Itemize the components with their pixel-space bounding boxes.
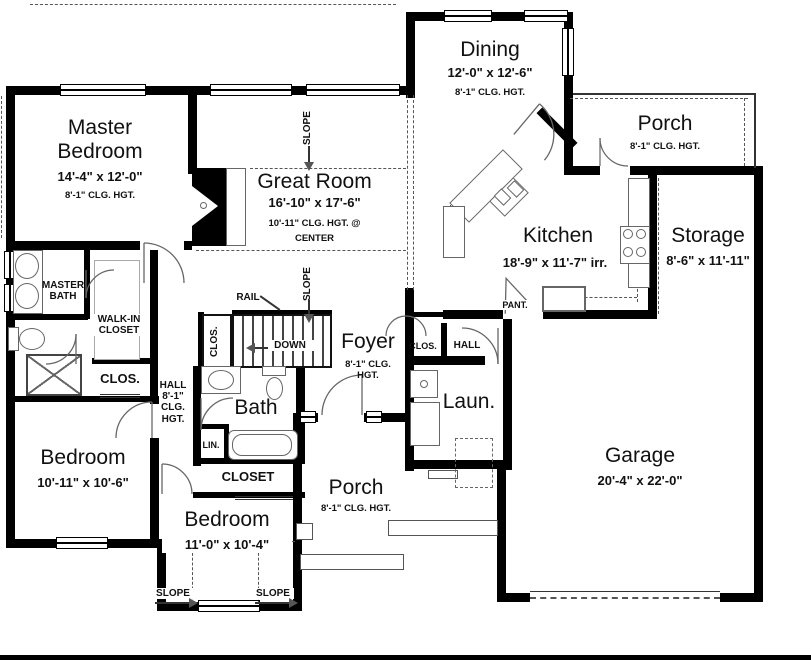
door-bedroom-rear	[162, 464, 192, 494]
garage-door	[530, 591, 720, 603]
wall	[193, 366, 201, 466]
garage-stoop	[428, 470, 458, 479]
slope-arrow-stem	[155, 602, 189, 604]
foyer-ceiling: 8'-1" CLG. HGT.	[336, 360, 400, 381]
hall-garage-label: HALL	[447, 340, 487, 351]
great-room-dims: 16'-10" x 17'-6"	[232, 196, 397, 211]
toilet-tank	[8, 327, 19, 351]
laundry-sink-drain	[420, 380, 428, 388]
window	[306, 84, 400, 96]
closet-bedroom-label: CLOSET	[208, 470, 288, 485]
bedroom-left-dims: 10'-11" x 10'-6"	[16, 476, 150, 491]
toilet-bowl	[19, 328, 45, 350]
laundry-label: Laun.	[436, 390, 502, 414]
refrigerator	[542, 286, 586, 312]
bedroom-rear-dims: 11'-0" x 10'-4"	[162, 538, 292, 553]
closet-door-track	[235, 499, 293, 500]
door-foyer-closet	[406, 316, 426, 336]
porch-rear-ceiling: 8'-1" CLG. HGT.	[610, 142, 720, 153]
slope-arrow-stem	[308, 300, 310, 314]
bath-label: Bath	[226, 396, 286, 420]
burner	[636, 247, 646, 257]
slope-label: SLOPE	[252, 588, 294, 599]
porch-edge	[754, 93, 756, 168]
porch-front-label: Porch	[318, 476, 394, 500]
closet-foyer-label: CLOS.	[404, 341, 442, 351]
closet-door-track	[100, 394, 140, 395]
porch-roof-line	[570, 98, 748, 99]
closet-door-track	[235, 496, 293, 497]
wall	[6, 314, 88, 320]
fireplace-detail	[200, 202, 207, 209]
window	[562, 28, 574, 76]
wall	[188, 86, 197, 174]
wall	[406, 12, 415, 98]
kitchen-counter	[443, 206, 465, 258]
bedroom-rear-label: Bedroom	[172, 508, 282, 532]
sidelight-window	[300, 411, 316, 423]
floor-plan: DOWN RAIL CLOS. S	[0, 0, 811, 664]
bathtub-inner	[232, 434, 292, 456]
page-footer-line	[0, 655, 811, 660]
door-walkin-closet	[86, 270, 114, 298]
slope-arrow-stem	[255, 602, 289, 604]
window	[524, 10, 568, 22]
window	[56, 537, 108, 549]
window	[198, 600, 260, 612]
window	[60, 84, 146, 96]
wall	[497, 465, 506, 602]
foyer-label: Foyer	[332, 330, 404, 354]
dining-dims: 12'-0" x 12'-6"	[420, 66, 560, 81]
sink	[15, 253, 39, 279]
down-label: DOWN	[266, 340, 314, 351]
porch-edge	[573, 93, 756, 95]
slope-arrow-head	[304, 314, 314, 323]
kitchen-label: Kitchen	[498, 224, 618, 248]
dryer-space	[455, 438, 493, 488]
closet-door-track	[100, 397, 140, 398]
down-arrow-stem	[254, 347, 268, 349]
closet-master-label: CLOS.	[92, 372, 148, 387]
storage-dims: 8'-6" x 11'-11"	[652, 254, 764, 269]
master-bedroom-ceiling: 8'-1" CLG. HGT.	[25, 191, 175, 202]
window	[210, 84, 292, 96]
master-bath-label: MASTER BATH	[36, 280, 90, 302]
stair-closet-label: CLOS.	[209, 320, 220, 364]
porch-post	[296, 523, 313, 540]
garage-dims: 20'-4" x 22'-0"	[572, 474, 708, 489]
porch-rear-label: Porch	[610, 112, 720, 136]
master-bedroom-label: Master Bedroom	[30, 116, 170, 163]
dining-label: Dining	[425, 38, 555, 62]
room-divider-dashed	[413, 95, 414, 290]
door-toilet-room	[46, 334, 76, 364]
storage-label: Storage	[658, 224, 758, 248]
wall	[503, 319, 512, 470]
bedroom-left-label: Bedroom	[28, 446, 138, 470]
wall	[564, 166, 763, 175]
garage-label: Garage	[580, 444, 700, 468]
great-room-label: Great Room	[232, 170, 397, 194]
pantry-label: PANT.	[494, 300, 536, 310]
porch-roof-line	[744, 98, 745, 166]
roof-line	[30, 4, 396, 5]
toilet-tank	[262, 366, 286, 376]
ceiling-break-line	[250, 168, 406, 169]
slope-arrow-head	[189, 598, 198, 608]
door-opening	[600, 166, 630, 175]
great-room-ceiling2: CENTER	[232, 234, 397, 245]
porch-step	[388, 520, 498, 536]
porch-front-ceiling: 8'-1" CLG. HGT.	[312, 504, 400, 515]
slope-label: SLOPE	[302, 108, 313, 148]
porch-step	[300, 554, 404, 570]
slope-label: SLOPE	[302, 264, 313, 304]
walkin-closet-label: WALK-IN CLOSET	[90, 314, 148, 336]
slope-arrow-head	[289, 598, 298, 608]
down-arrow-head	[246, 343, 255, 353]
master-bedroom-dims: 14'-4" x 12'-0"	[25, 170, 175, 185]
door-dining-porch	[514, 104, 570, 160]
great-room-ceiling: 10'-11" CLG. HGT. @	[232, 219, 397, 230]
burner	[636, 229, 646, 239]
window	[444, 10, 492, 22]
sidelight-window	[366, 411, 382, 423]
roof-line	[1, 96, 2, 238]
sink	[208, 370, 234, 390]
hall-bedrooms-label: HALL 8'-1" CLG. HGT.	[153, 380, 193, 425]
door-master-bedroom	[144, 243, 184, 283]
door-bedroom-left	[116, 402, 152, 438]
slope-arrow-stem	[308, 146, 310, 162]
wall	[193, 492, 305, 498]
stair-rail	[232, 310, 332, 314]
kitchen-dims: 18'-9" x 11'-7" irr.	[480, 256, 630, 271]
burner	[623, 229, 633, 239]
ceiling-break-line	[196, 250, 406, 251]
linen-label: LIN.	[196, 440, 226, 450]
dining-ceiling: 8'-1" CLG. HGT.	[420, 88, 560, 99]
room-divider-dashed	[407, 95, 408, 290]
slope-label: SLOPE	[152, 588, 194, 599]
